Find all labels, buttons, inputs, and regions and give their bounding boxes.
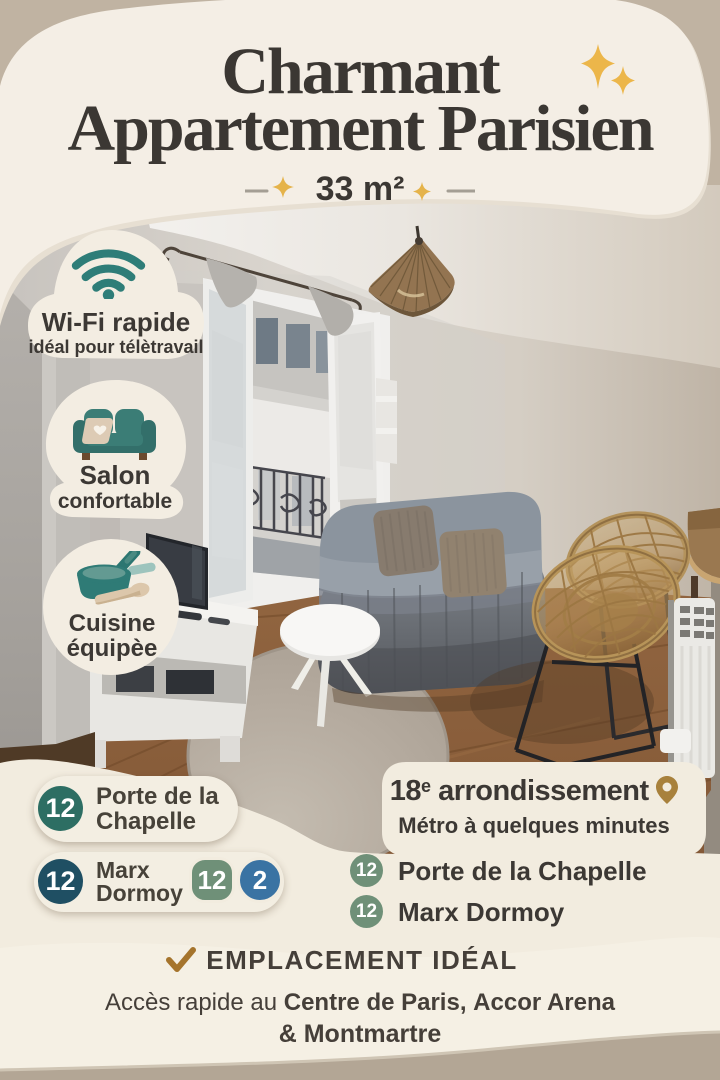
svg-text:33 m²: 33 m² — [316, 170, 405, 208]
